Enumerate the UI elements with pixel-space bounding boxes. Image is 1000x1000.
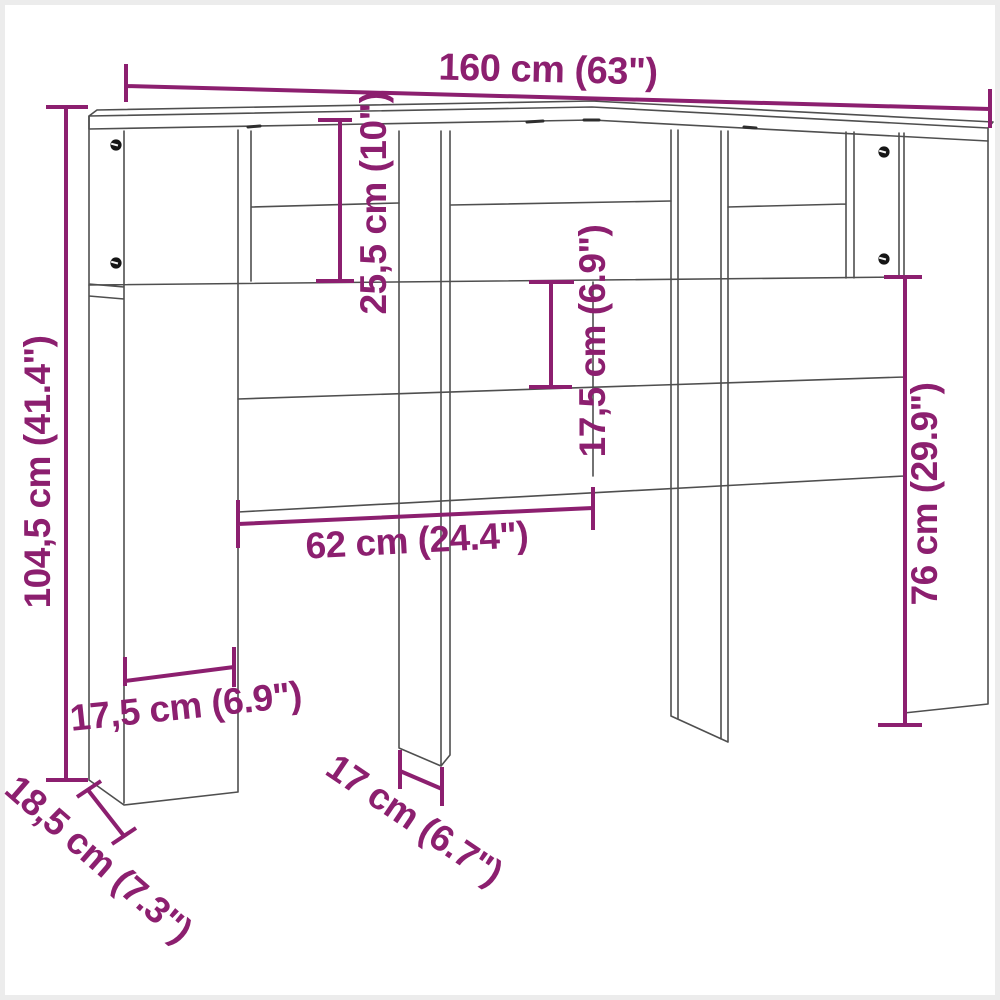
seam-mark	[248, 126, 260, 127]
screw-icon	[110, 257, 121, 268]
dimension-leg-width-label: 17 cm (6.7")	[319, 746, 510, 893]
dimension-center-width-label: 62 cm (24.4")	[304, 514, 529, 567]
seam-mark	[744, 127, 756, 128]
middle-legs	[399, 130, 728, 766]
screw-icon	[878, 146, 889, 157]
back-panel	[238, 133, 988, 713]
headboard-dimension-diagram: 160 cm (63") 104,5 cm (41.4") 25,5 cm (1…	[0, 0, 1000, 1000]
image-border	[3, 3, 998, 998]
dimension-side-panel-height: 76 cm (29.9")	[878, 277, 945, 725]
dimension-top-shelf-height-label: 25,5 cm (10")	[353, 92, 394, 315]
dimension-center-width: 62 cm (24.4")	[238, 487, 593, 567]
dimension-line	[529, 282, 574, 387]
dimension-total-width-label: 160 cm (63")	[438, 47, 658, 94]
dimension-total-height-label: 104,5 cm (41.4")	[17, 336, 58, 609]
dimension-leg-width: 17 cm (6.7")	[319, 746, 510, 893]
dimension-line	[125, 647, 234, 687]
dimension-shelf-gap-height-label: 17,5 cm (6.9")	[572, 225, 613, 458]
dimension-depth: 18,5 cm (7.3")	[0, 767, 200, 951]
seam-mark	[527, 121, 543, 122]
upper-cabinet-row	[89, 131, 904, 285]
screw-icon	[110, 139, 121, 150]
dimension-depth-label: 18,5 cm (7.3")	[0, 767, 200, 951]
dimension-line	[316, 120, 354, 281]
dimension-side-panel-height-label: 76 cm (29.9")	[904, 383, 945, 606]
dimension-column-width: 17,5 cm (6.9")	[68, 647, 304, 739]
dimension-column-width-label: 17,5 cm (6.9")	[68, 674, 304, 739]
screw-icon	[878, 253, 889, 264]
diagram-page: 160 cm (63") 104,5 cm (41.4") 25,5 cm (1…	[0, 0, 1000, 1000]
dimension-total-height: 104,5 cm (41.4")	[17, 107, 88, 780]
dimension-shelf-gap-height: 17,5 cm (6.9")	[529, 225, 613, 458]
